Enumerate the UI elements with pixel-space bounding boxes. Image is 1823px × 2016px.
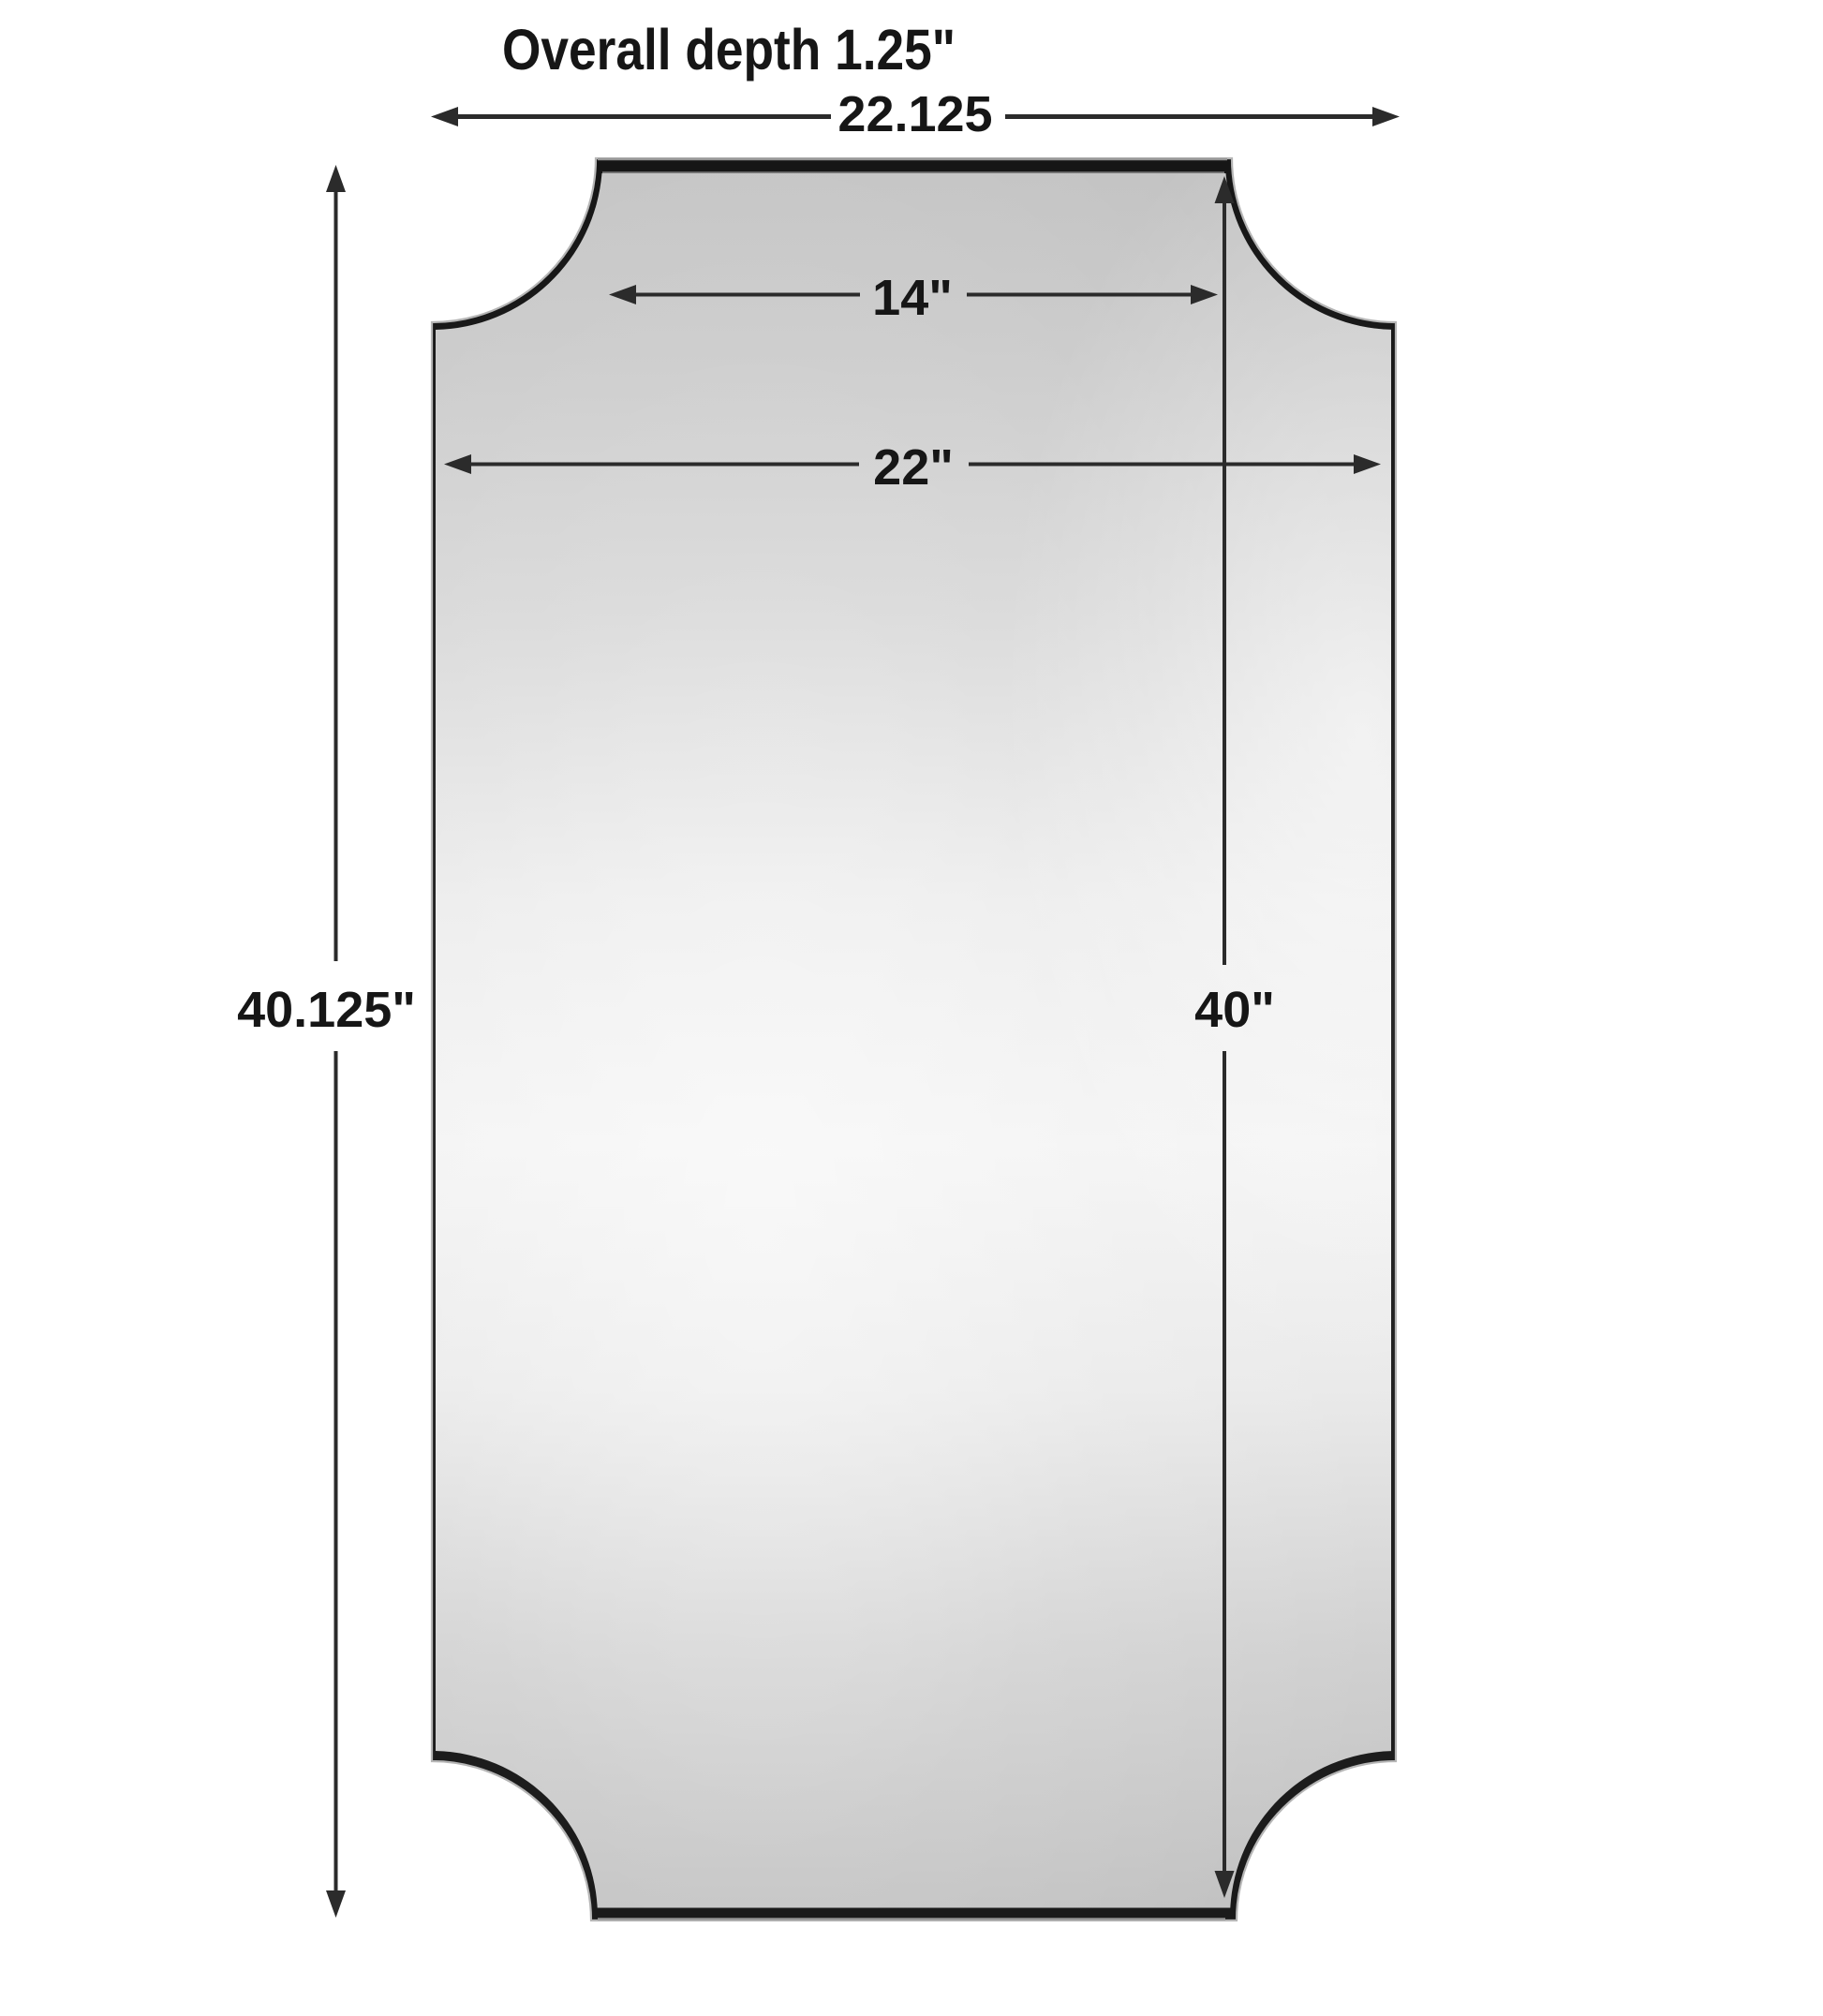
svg-text:14": 14" bbox=[872, 270, 953, 326]
svg-text:40": 40" bbox=[1194, 982, 1275, 1038]
svg-text:22.125: 22.125 bbox=[837, 86, 992, 142]
svg-text:22": 22" bbox=[873, 439, 954, 496]
svg-text:Overall depth 1.25": Overall depth 1.25" bbox=[502, 18, 956, 82]
svg-text:40.125": 40.125" bbox=[237, 982, 416, 1038]
